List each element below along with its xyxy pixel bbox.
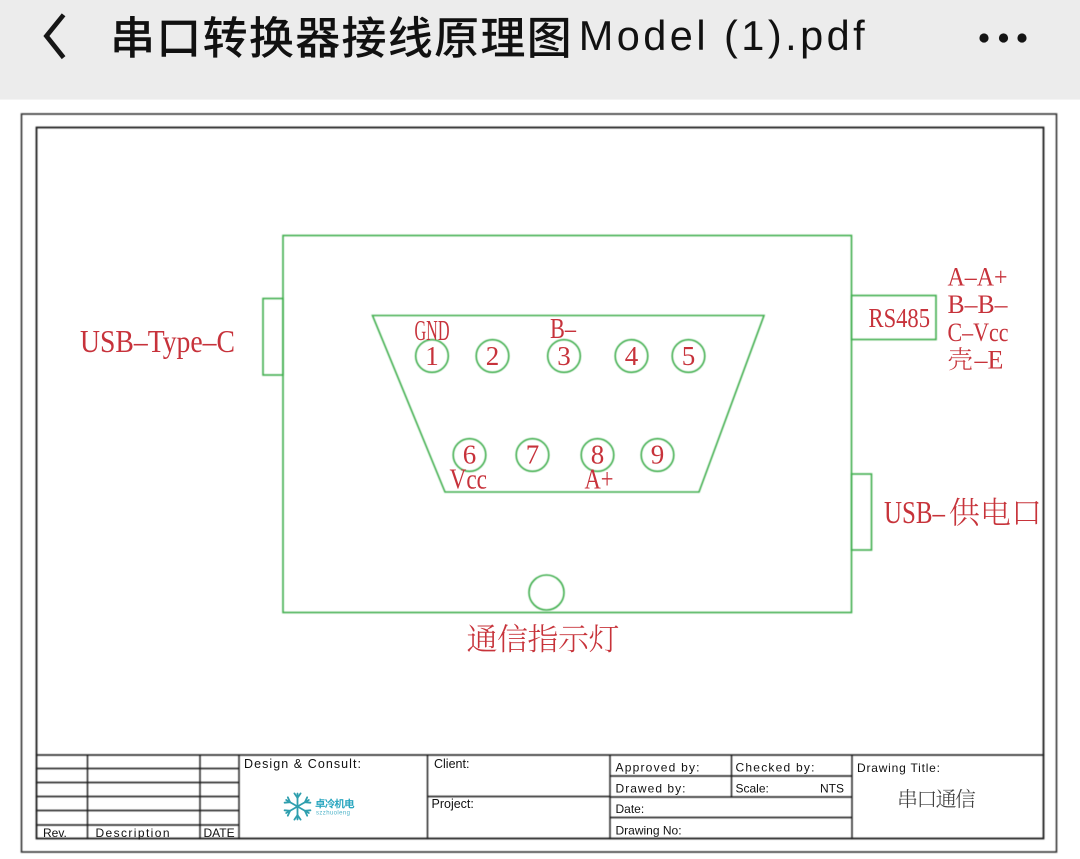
svg-text:4: 4 (625, 341, 639, 371)
svg-text:USB–Type–C: USB–Type–C (80, 324, 235, 359)
svg-text:Client:: Client: (434, 757, 469, 771)
svg-text:B–B–: B–B– (948, 290, 1009, 319)
svg-text:Drawed by:: Drawed by: (616, 782, 686, 796)
svg-text:C–Vcc: C–Vcc (948, 318, 1009, 347)
svg-text:B–: B– (550, 313, 576, 345)
svg-text:Approved by:: Approved by: (616, 761, 700, 775)
svg-text:3: 3 (557, 341, 571, 371)
svg-text:A–A+: A–A+ (948, 263, 1008, 292)
svg-text:A+: A+ (585, 464, 614, 496)
svg-text:Checked by:: Checked by: (736, 761, 815, 775)
svg-text:Project:: Project: (432, 797, 474, 811)
svg-text:9: 9 (651, 439, 665, 469)
svg-text:7: 7 (526, 439, 540, 469)
svg-text:Scale:: Scale: (736, 782, 769, 796)
svg-text:USB–: USB– (884, 495, 945, 530)
svg-text:Vcc: Vcc (450, 464, 488, 496)
svg-text:szzhuoleng: szzhuoleng (316, 811, 350, 817)
svg-text:Design & Consult:: Design & Consult: (244, 757, 361, 771)
svg-text:Drawing No:: Drawing No: (616, 824, 682, 838)
svg-text:2: 2 (486, 341, 500, 371)
svg-text:DATE: DATE (204, 826, 235, 840)
svg-text:NTS: NTS (820, 782, 844, 796)
svg-text:GND: GND (415, 315, 450, 347)
svg-text:5: 5 (682, 341, 696, 371)
svg-text:RS485: RS485 (869, 302, 931, 333)
svg-text:Date:: Date: (616, 802, 645, 816)
svg-text:–E: –E (974, 346, 1004, 375)
svg-text:Rev.: Rev. (43, 826, 67, 840)
svg-text:Drawing Title:: Drawing Title: (857, 761, 940, 775)
